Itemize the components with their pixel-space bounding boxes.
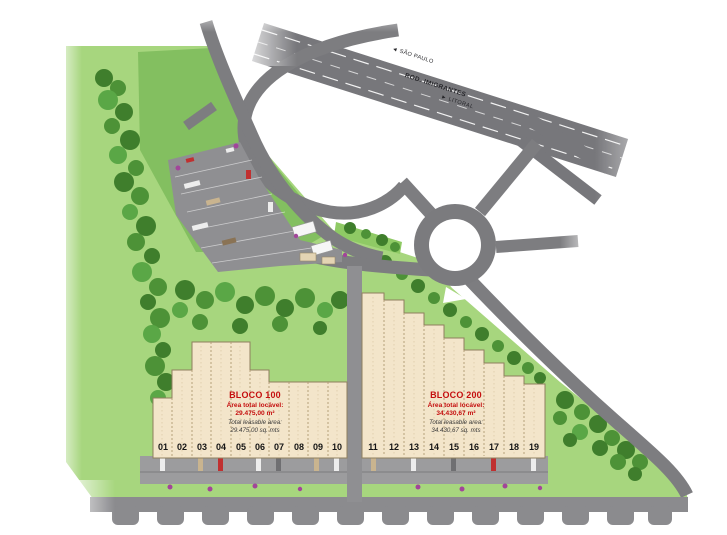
unit-number-18: 18 [509,442,519,452]
center-road [347,266,362,502]
unit-number-16: 16 [469,442,479,452]
unit-number-19: 19 [529,442,539,452]
unit-number-10: 10 [332,442,342,452]
bloco-100-area-label-en: Total leasable area: [227,419,284,427]
loading-docks [140,456,548,484]
unit-number-12: 12 [389,442,399,452]
unit-number-13: 13 [409,442,419,452]
unit-number-04: 04 [216,442,226,452]
unit-number-01: 01 [158,442,168,452]
unit-number-14: 14 [429,442,439,452]
bloco-100-area-value-pt: 29.475,00 m² [227,410,284,419]
bloco-200-area-label-pt: Área total locável: [428,402,485,411]
unit-number-17: 17 [489,442,499,452]
bloco-100-label: BLOCO 100 Área total locável: 29.475,00 … [227,390,284,435]
unit-number-05: 05 [236,442,246,452]
unit-number-03: 03 [197,442,207,452]
bottom-road [90,497,688,525]
unit-number-06: 06 [255,442,265,452]
bloco-200-area-label-en: Total leasable area: [428,419,485,427]
unit-number-15: 15 [449,442,459,452]
unit-number-02: 02 [177,442,187,452]
unit-number-08: 08 [294,442,304,452]
bloco-200-area-value-pt: 34.430,67 m² [428,410,485,419]
bloco-200-label: BLOCO 200 Área total locável: 34.430,67 … [428,390,485,435]
bloco-100-area-label-pt: Área total locável: [227,402,284,411]
unit-number-07: 07 [274,442,284,452]
bloco-200-title: BLOCO 200 [428,390,485,402]
unit-number-11: 11 [368,442,378,452]
bloco-100-area-value-en: 29.475,00 sq. mts [227,427,284,435]
bloco-200-area-value-en: 34.430,67 sq. mts [428,427,485,435]
bloco-100-title: BLOCO 100 [227,390,284,402]
site-plan-graphic [0,0,727,535]
unit-number-09: 09 [313,442,323,452]
site-plan: BLOCO 100 Área total locável: 29.475,00 … [0,0,727,535]
